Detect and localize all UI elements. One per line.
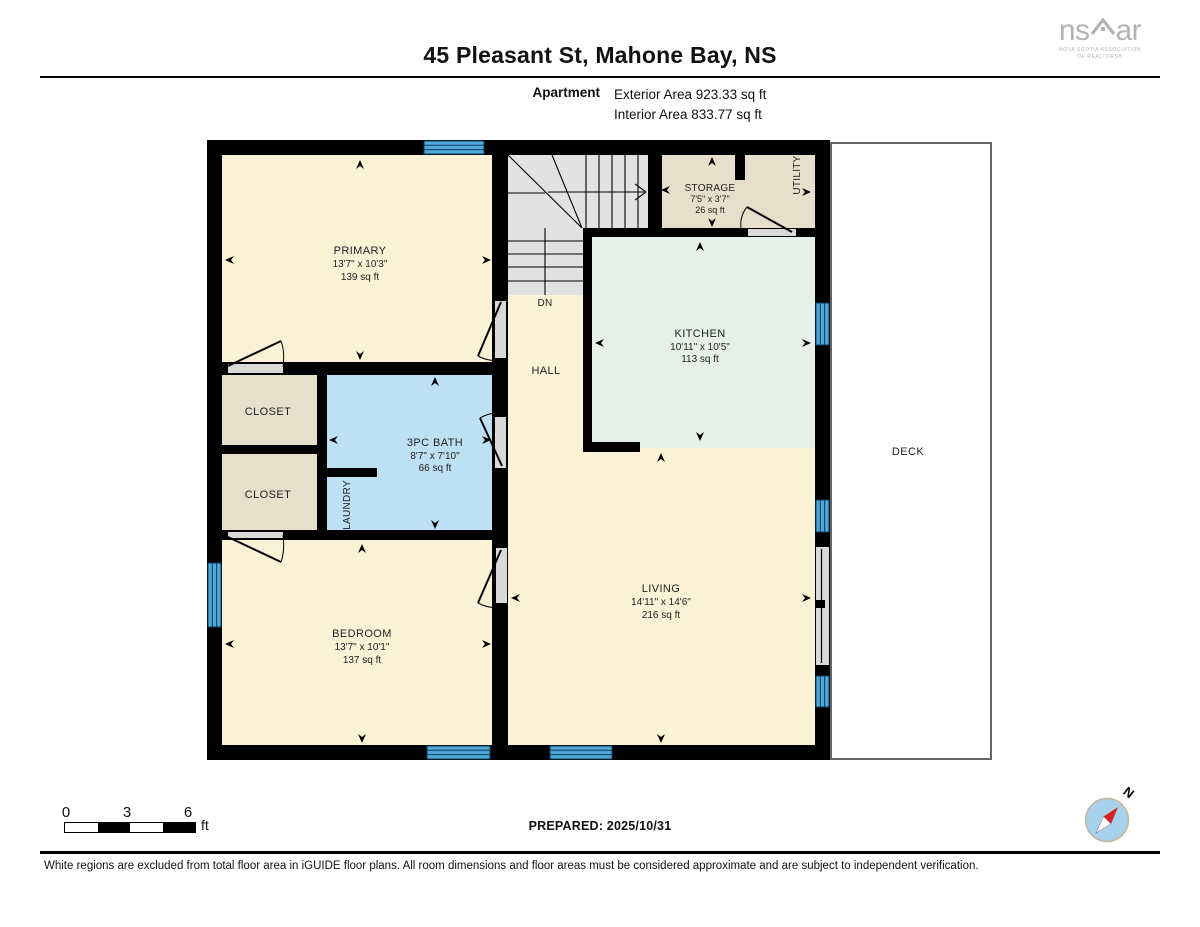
storage-area: 26 sq ft — [695, 205, 725, 215]
prepared-date: PREPARED: 2025/10/31 — [0, 819, 1200, 833]
living-area: 216 sq ft — [642, 610, 681, 621]
kitchen-label: KITCHEN — [674, 328, 725, 340]
window-bedroom-left — [208, 563, 221, 627]
primary-area: 139 sq ft — [341, 272, 380, 283]
window-living-bottom — [550, 746, 612, 759]
stairs-upper-area — [508, 153, 650, 228]
laundry-label: LAUNDRY — [342, 480, 353, 530]
window-living-right-upper — [816, 500, 829, 532]
logo-subtext-1: NOVA SCOTIA ASSOCIATION — [1020, 47, 1180, 53]
floor-plan: DECK — [200, 135, 1000, 770]
bedroom-dims: 13'7" x 10'1" — [335, 642, 390, 653]
utility-label: UTILITY — [792, 155, 803, 194]
storage-label: STORAGE — [685, 183, 736, 194]
bedroom-area: 137 sq ft — [343, 655, 382, 666]
stairs-dn-label: DN — [537, 298, 552, 309]
storage-dims: 7'5" x 3'7" — [690, 194, 729, 204]
window-living-right-lower — [816, 676, 829, 707]
bath-dims: 8'7" x 7'10" — [410, 451, 460, 462]
closet1-label: CLOSET — [245, 406, 291, 418]
interior-area: Interior Area 833.77 sq ft — [614, 105, 766, 125]
kitchen-dims: 10'11" x 10'5" — [670, 342, 730, 353]
window-bedroom-bottom — [427, 746, 490, 759]
floor-label: Apartment — [440, 85, 600, 100]
living-label: LIVING — [642, 583, 680, 595]
closet2-label: CLOSET — [245, 489, 291, 501]
compass-icon — [1084, 797, 1130, 843]
logo-text-left: ns — [1059, 16, 1090, 46]
hall-label: HALL — [531, 365, 560, 377]
logo-subtext-2: OF REALTORS® — [1020, 54, 1180, 60]
kitchen-area: 113 sq ft — [681, 354, 719, 365]
bath-area: 66 sq ft — [419, 463, 452, 474]
disclaimer-text: White regions are excluded from total fl… — [44, 860, 1164, 872]
primary-label: PRIMARY — [334, 245, 387, 257]
area-summary: Exterior Area 923.33 sq ft Interior Area… — [614, 85, 766, 125]
footer-divider — [40, 851, 1160, 854]
primary-dims: 13'7" x 10'3" — [333, 259, 388, 270]
living-dims: 14'11" x 14'6" — [631, 597, 691, 608]
compass: N — [1084, 797, 1130, 843]
bedroom-label: BEDROOM — [332, 628, 392, 640]
house-icon — [1091, 12, 1115, 42]
sliding-door — [816, 547, 829, 665]
bath-label: 3PC BATH — [407, 437, 463, 449]
header-divider — [40, 76, 1160, 78]
nsar-logo: ns ar NOVA SCOTIA ASSOCIATION OF REALTOR… — [1020, 12, 1180, 60]
window-top-primary — [424, 141, 484, 154]
window-kitchen-right — [816, 303, 829, 345]
deck-label: DECK — [892, 446, 924, 458]
logo-text-right: ar — [1116, 16, 1142, 46]
exterior-area: Exterior Area 923.33 sq ft — [614, 85, 766, 105]
